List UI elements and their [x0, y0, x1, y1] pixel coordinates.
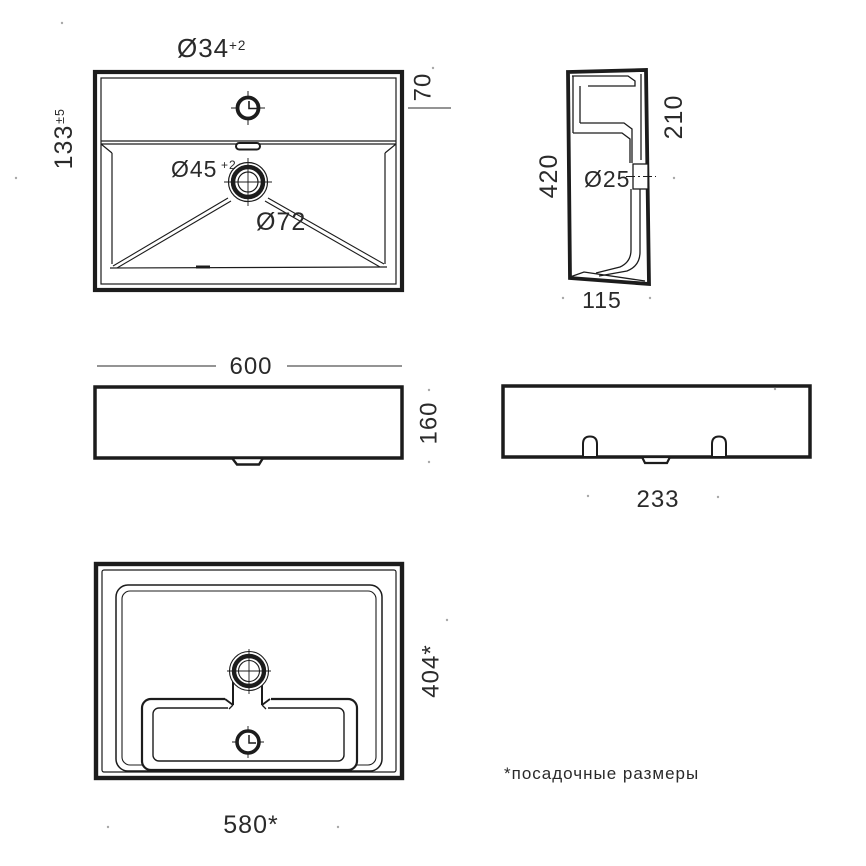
dim-bracket-spacing-label: 233	[636, 486, 679, 513]
dim-height-label: 160	[416, 401, 443, 444]
sink-dimension-drawing: Ø34 +2 70 133 ±5 Ø45 +2 Ø72 420 210 Ø25 …	[0, 0, 866, 866]
side-view-drawing: 420 210 Ø25 115	[535, 70, 688, 313]
mounting-cutout-right	[712, 437, 726, 457]
dim-drain-diameter-label: Ø45	[171, 156, 217, 182]
dim-depth-label: 115	[582, 287, 622, 313]
overflow-slot-symbol	[236, 143, 260, 150]
bottom-view-drawing: 404* 580*	[96, 564, 445, 839]
top-view-drawing: Ø34 +2 70 133 ±5 Ø45 +2 Ø72	[50, 33, 451, 290]
technical-drawing-canvas: Ø34 +2 70 133 ±5 Ø45 +2 Ø72 420 210 Ø25 …	[0, 0, 866, 866]
dim-mounting-depth-label: 404*	[418, 644, 445, 697]
footnote-label: *посадочные размеры	[504, 764, 699, 783]
mounting-cutout-left	[583, 437, 597, 457]
dim-drain-tolerance-label: +2	[221, 158, 237, 172]
rear-view-drawing: 233	[503, 386, 810, 513]
drain-notch	[232, 458, 263, 465]
dim-deck-depth-label: 70	[410, 73, 437, 102]
dim-width-label: 600	[229, 353, 272, 380]
front-view-drawing: 600 160	[95, 353, 443, 465]
drain-notch-rear	[642, 457, 670, 463]
dim-total-height-label: 420	[535, 154, 563, 199]
dim-front-height-label: 210	[660, 95, 688, 140]
dim-overflow-diameter-label: Ø25	[584, 166, 630, 192]
dim-faucet-diameter-label: Ø34	[177, 33, 229, 63]
dim-rim-tolerance-label: ±5	[53, 108, 67, 124]
dim-faucet-tolerance-label: +2	[229, 38, 246, 53]
dim-recess-diameter-label: Ø72	[256, 208, 306, 236]
dim-rim-height-label: 133	[50, 125, 78, 170]
dim-mounting-width-label: 580*	[223, 811, 278, 839]
